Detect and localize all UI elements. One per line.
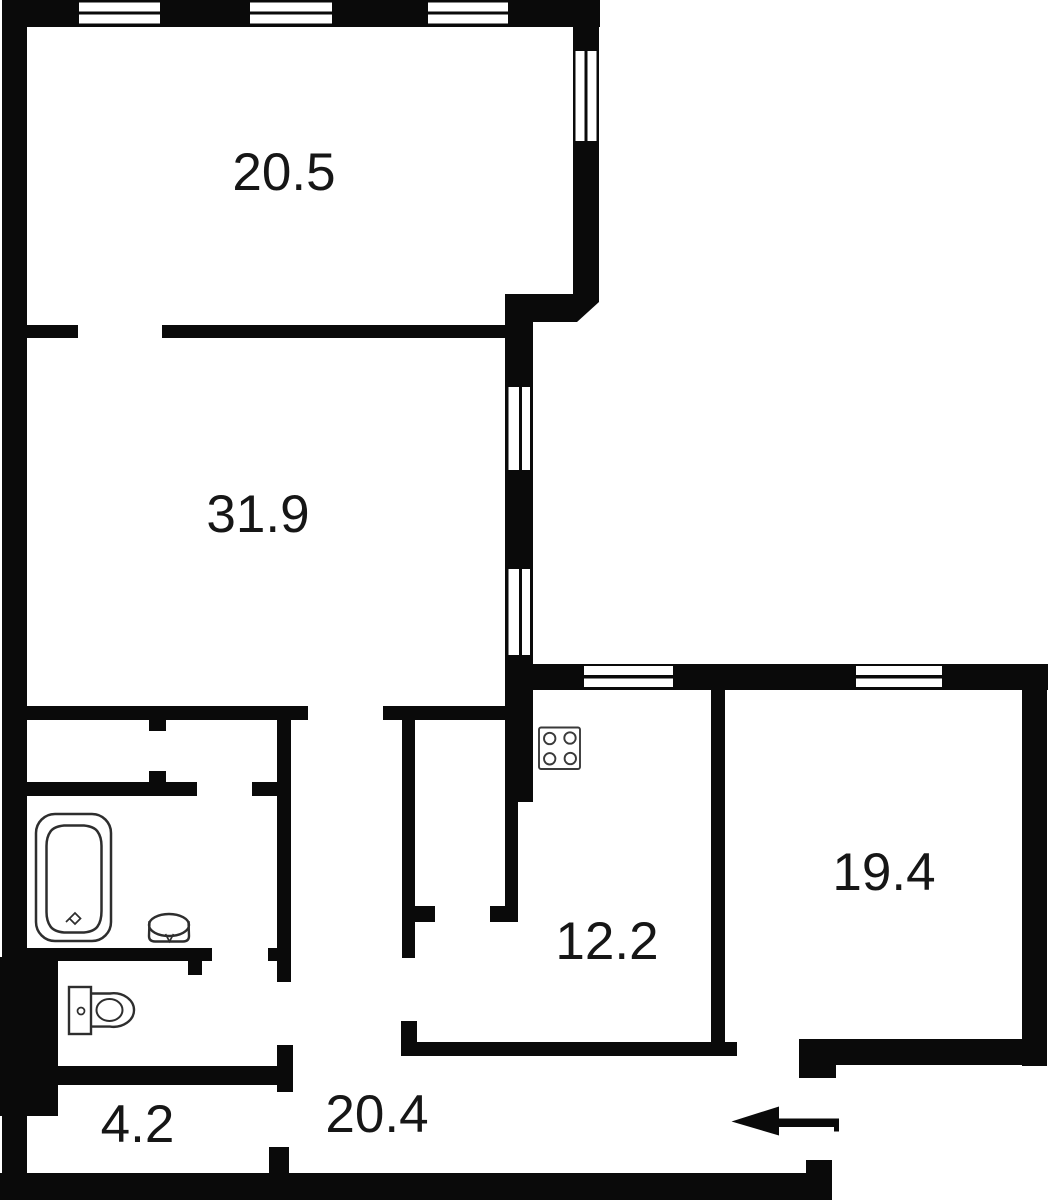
svg-text:20.4: 20.4 — [325, 1085, 428, 1144]
svg-text:12.2: 12.2 — [555, 912, 658, 971]
svg-text:4.2: 4.2 — [101, 1095, 175, 1154]
svg-text:31.9: 31.9 — [206, 485, 309, 544]
svg-text:19.4: 19.4 — [832, 843, 935, 902]
svg-text:20.5: 20.5 — [232, 143, 335, 202]
